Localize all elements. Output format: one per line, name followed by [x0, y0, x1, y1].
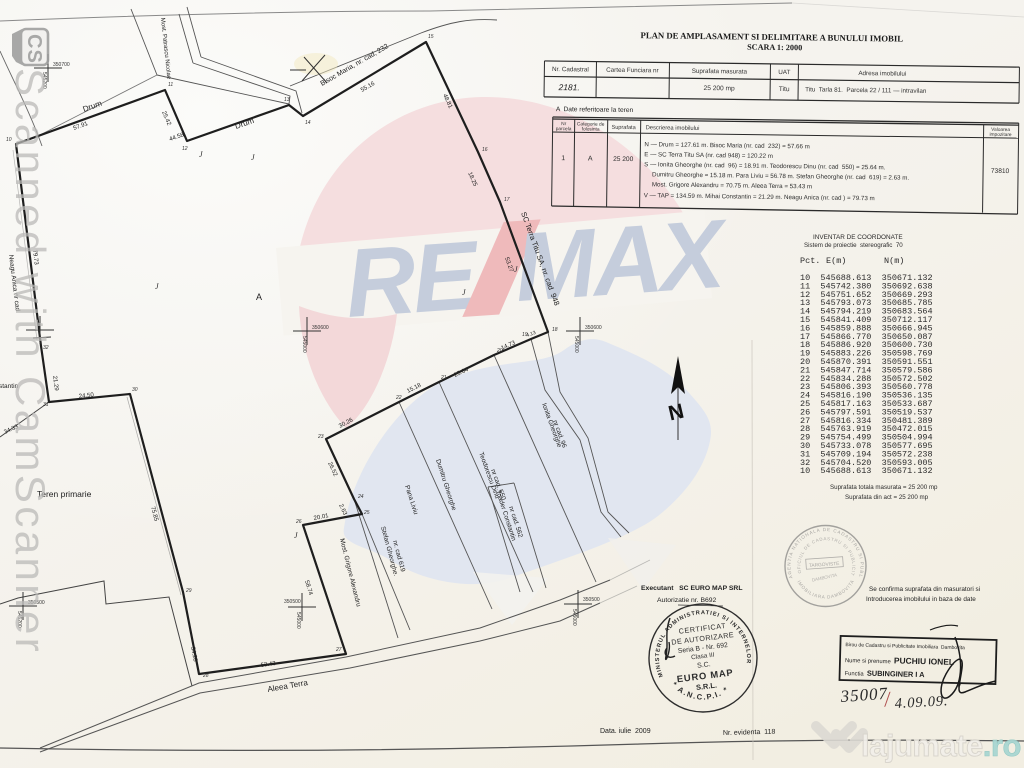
svg-text:27: 27 [335, 647, 342, 653]
svg-text:545000: 545000 [573, 336, 579, 353]
svg-text:21: 21 [440, 375, 447, 381]
svg-text:Suprafata: Suprafata [611, 125, 636, 131]
svg-text:24: 24 [357, 494, 364, 500]
svg-text:29: 29 [185, 588, 192, 594]
svg-text:SCARA 1: 2000: SCARA 1: 2000 [747, 43, 802, 53]
svg-text:Scanned with CamScanner: Scanned with CamScanner [7, 68, 54, 655]
svg-text:12: 12 [182, 146, 188, 152]
svg-text:Introducerea imobilului in baz: Introducerea imobilului in baza de date [866, 596, 976, 603]
svg-text:Se confirma suprafata din masu: Se confirma suprafata din masuratori si [869, 586, 980, 593]
svg-text:Titu: Titu [779, 86, 790, 93]
svg-text:J: J [251, 153, 255, 162]
svg-text:E(m): E(m) [826, 256, 846, 266]
svg-text:lajumate.ro: lajumate.ro [861, 728, 1021, 763]
svg-text:parcela: parcela [556, 126, 572, 132]
svg-text:Suprafata din act = 25 200 mp: Suprafata din act = 25 200 mp [845, 494, 929, 501]
svg-text:20: 20 [496, 348, 503, 354]
svg-text:22: 22 [395, 395, 402, 401]
svg-text:350600: 350600 [585, 325, 602, 331]
svg-text:Autorizatie nr. B692: Autorizatie nr. B692 [657, 597, 717, 604]
svg-text:Nr. evidenta 118: Nr. evidenta 118 [723, 729, 776, 737]
svg-text:350600: 350600 [312, 325, 329, 331]
svg-text:350500: 350500 [284, 599, 301, 605]
svg-text:Suprafata totala masurata = 25: Suprafata totala masurata = 25 200 mp [830, 484, 938, 491]
svg-text:v: v [957, 680, 961, 690]
svg-text:INVENTAR DE COORDONATE: INVENTAR DE COORDONATE [813, 234, 903, 241]
svg-text:545000: 545000 [571, 609, 577, 626]
svg-text:N(m): N(m) [884, 256, 904, 266]
svg-text:545000: 545000 [301, 336, 307, 353]
svg-text:350700: 350700 [53, 62, 70, 68]
svg-text:28: 28 [202, 673, 209, 679]
svg-text:1: 1 [561, 155, 565, 162]
svg-text:25 200: 25 200 [613, 156, 634, 163]
svg-text:Suprafata masurata: Suprafata masurata [692, 68, 748, 76]
svg-text:Sistem de proiectie stereogra: Sistem de proiectie stereografic 70 [804, 242, 903, 249]
svg-text:J: J [155, 282, 159, 291]
svg-text:15: 15 [428, 34, 434, 40]
svg-text:Executant SC EURO MAP SRL: Executant SC EURO MAP SRL [641, 585, 742, 592]
svg-text:A: A [588, 155, 593, 162]
svg-text:J: J [462, 288, 466, 297]
svg-text:545000: 545000 [295, 612, 301, 629]
svg-text:2181.: 2181. [557, 82, 579, 92]
svg-text:11: 11 [168, 82, 173, 88]
svg-text:26: 26 [295, 519, 302, 525]
svg-text:UAT: UAT [778, 69, 790, 76]
svg-text:A Date referitoare la teren: A Date referitoare la teren [556, 106, 634, 114]
svg-text:RE: RE [342, 220, 484, 338]
svg-text:Descrierea imobilului: Descrierea imobilului [646, 125, 700, 132]
svg-text:Pct.: Pct. [800, 256, 820, 266]
svg-text:18: 18 [552, 327, 558, 333]
svg-text:A: A [256, 292, 262, 302]
svg-text:impozitare: impozitare [989, 132, 1012, 138]
svg-text:19: 19 [522, 332, 528, 338]
svg-text:16: 16 [482, 147, 488, 153]
svg-text:14: 14 [305, 120, 311, 126]
svg-text:25 200 mp: 25 200 mp [704, 85, 736, 92]
svg-text:350500: 350500 [583, 597, 600, 603]
svg-text:10 545688.613 350671.132: 10 545688.613 350671.132 [800, 466, 933, 476]
svg-text:J: J [514, 265, 518, 274]
svg-text:17: 17 [504, 197, 510, 203]
svg-text:CS: CS [23, 34, 45, 64]
svg-text:4.09.09.: 4.09.09. [894, 693, 948, 712]
svg-text:J: J [199, 150, 203, 159]
svg-text:J: J [294, 531, 298, 540]
svg-text:Nr. Cadastral: Nr. Cadastral [552, 66, 589, 73]
svg-text:25: 25 [363, 510, 370, 516]
svg-text:Data. iulie 2009: Data. iulie 2009 [600, 728, 651, 735]
svg-text:Adresa imobilului: Adresa imobilului [858, 70, 906, 78]
svg-text:30: 30 [132, 387, 138, 393]
svg-text:Cartea Funciara nr: Cartea Funciara nr [606, 67, 659, 75]
svg-text:folosinta: folosinta [582, 126, 600, 132]
svg-text:13: 13 [284, 97, 290, 103]
svg-text:73810: 73810 [991, 168, 1010, 175]
svg-text:23: 23 [317, 434, 324, 440]
